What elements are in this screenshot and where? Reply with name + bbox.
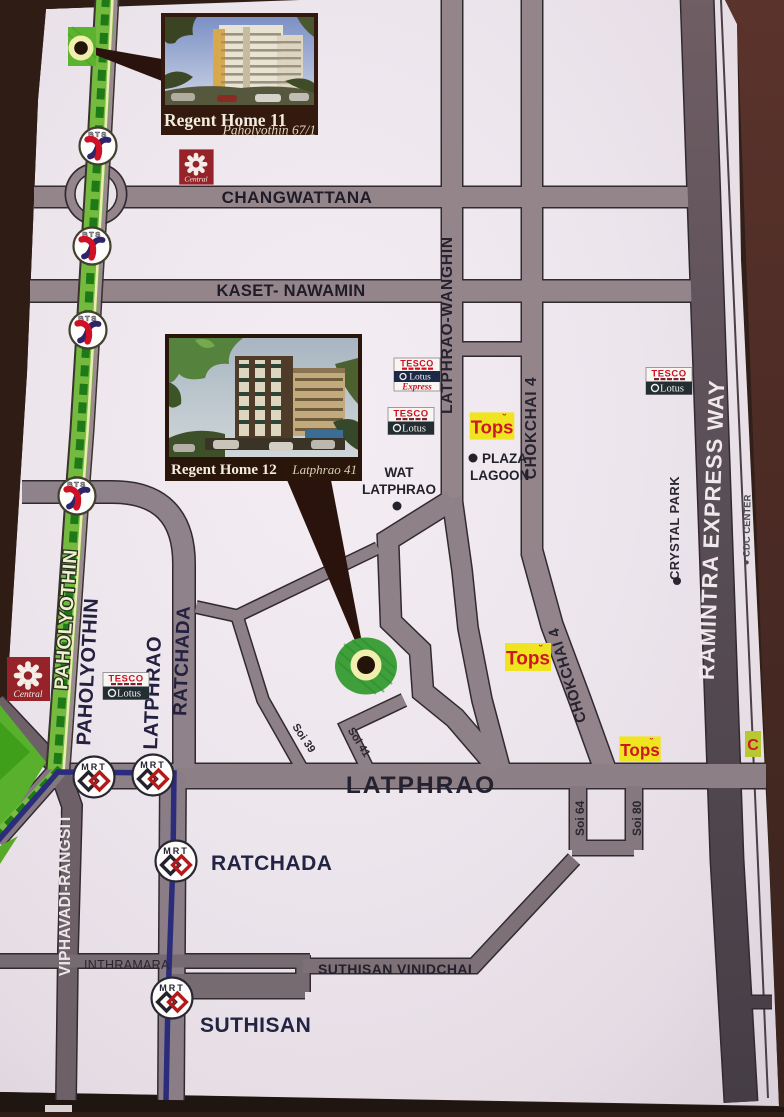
svg-text:PLAZA: PLAZA: [482, 451, 527, 466]
svg-text:Soi 64: Soi 64: [573, 800, 587, 836]
svg-text:Latphrao 41: Latphrao 41: [291, 462, 357, 477]
svg-text:VIPHAVADI-RANGSIT: VIPHAVADI-RANGSIT: [57, 814, 74, 976]
svg-text:Express: Express: [401, 382, 432, 392]
svg-text:C: C: [747, 737, 759, 754]
svg-text:CRYSTAL PARK: CRYSTAL PARK: [667, 476, 682, 580]
svg-text:LATPHRAO: LATPHRAO: [346, 772, 496, 799]
svg-text:RATCHADA: RATCHADA: [170, 605, 195, 716]
svg-text:RATCHADA: RATCHADA: [211, 852, 332, 875]
svg-text:CHANGWATTANA: CHANGWATTANA: [222, 188, 373, 207]
svg-text:WAT: WAT: [385, 465, 415, 480]
svg-text:LATPHRAO-WANGHIN: LATPHRAO-WANGHIN: [439, 236, 456, 414]
svg-text:SUTHISAN: SUTHISAN: [200, 1014, 311, 1037]
svg-text:SUTHISAN VINIDCHAI: SUTHISAN VINIDCHAI: [318, 961, 472, 977]
svg-text:INTHRAMARA: INTHRAMARA: [84, 958, 170, 972]
svg-text:Regent Home 12: Regent Home 12: [171, 462, 277, 478]
svg-text:LAGOON: LAGOON: [470, 468, 529, 483]
svg-text:Soi 80: Soi 80: [630, 800, 644, 836]
svg-text:Paholyothin 67/1: Paholyothin 67/1: [222, 123, 316, 138]
svg-text:LATPHRAO: LATPHRAO: [362, 482, 436, 497]
svg-text:TESCO: TESCO: [400, 359, 434, 369]
svg-text:KASET- NAWAMIN: KASET- NAWAMIN: [216, 282, 365, 300]
svg-text:● CDC CENTER: ● CDC CENTER: [741, 494, 753, 565]
